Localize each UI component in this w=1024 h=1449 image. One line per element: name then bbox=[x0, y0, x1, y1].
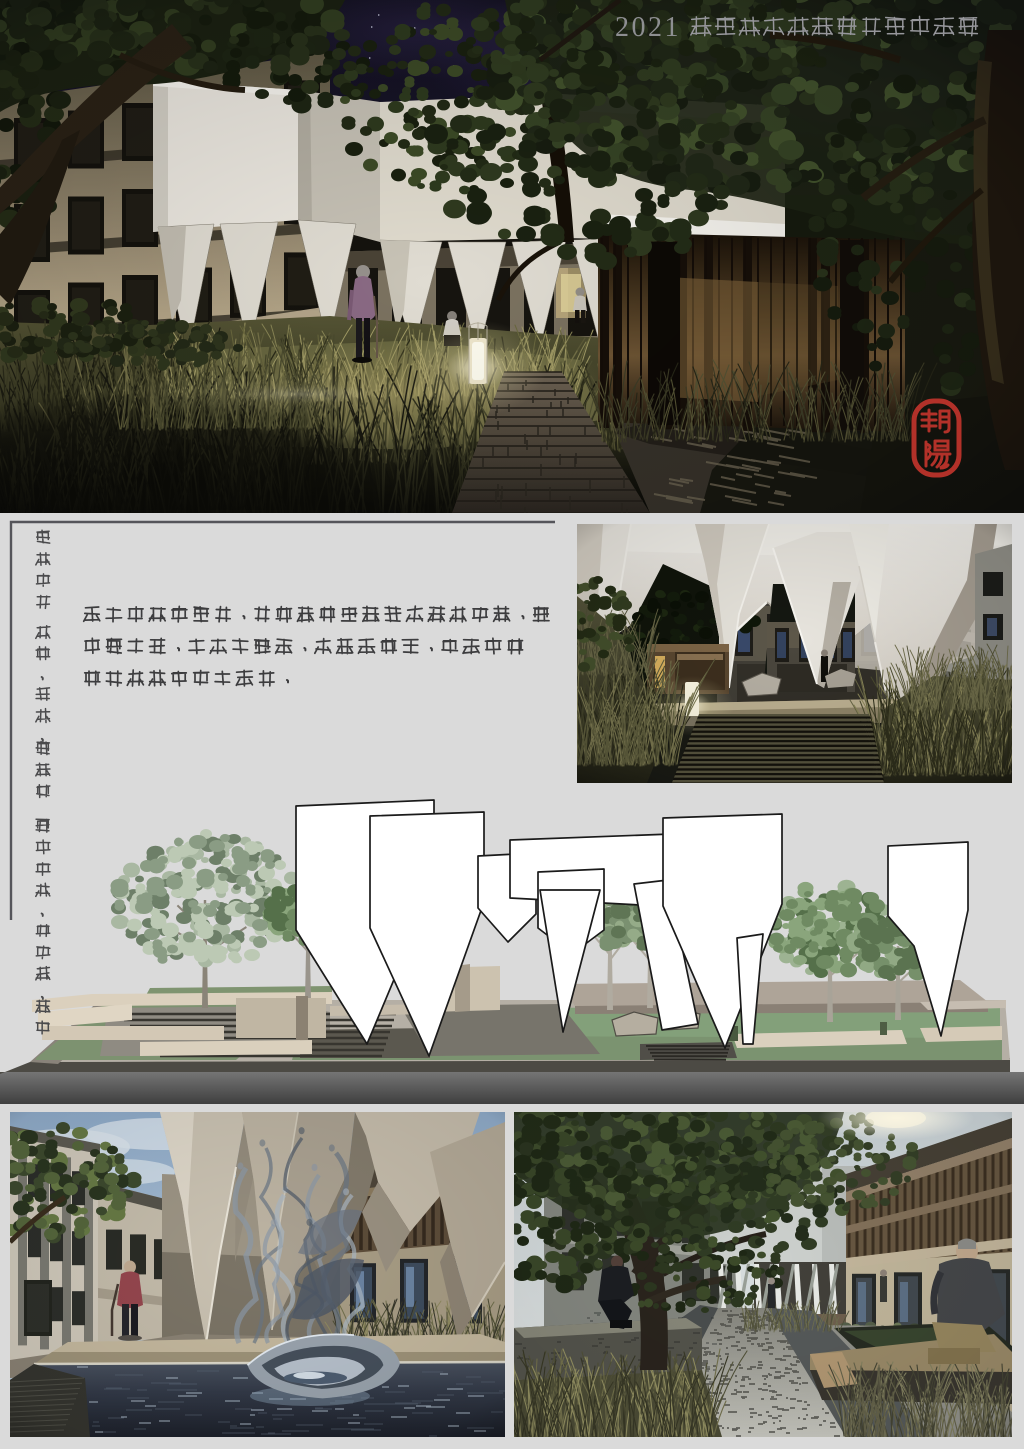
svg-text:2021: 2021 bbox=[615, 12, 681, 43]
